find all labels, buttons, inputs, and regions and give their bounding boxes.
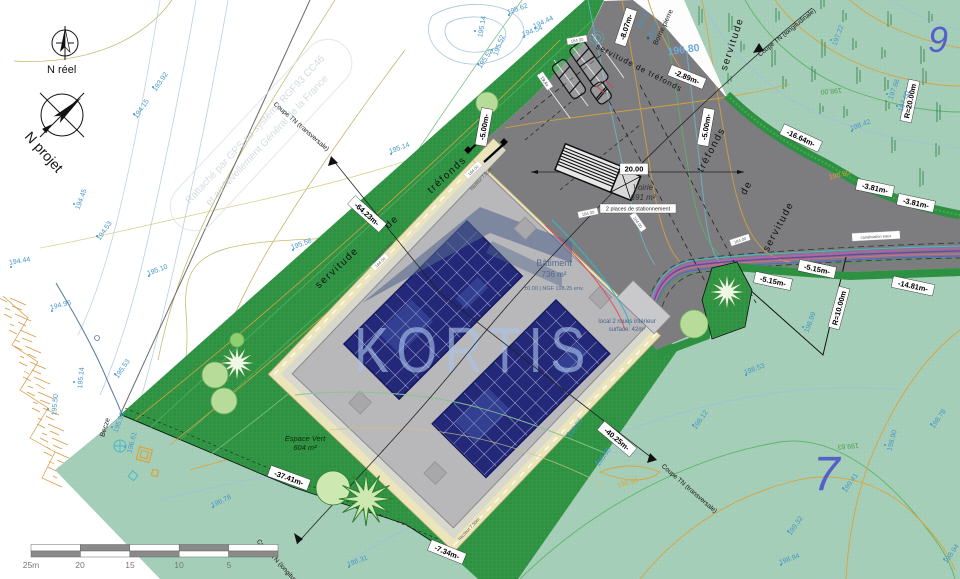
svg-text:5: 5 bbox=[227, 560, 232, 570]
svg-text:surface: 42m²: surface: 42m² bbox=[609, 327, 646, 333]
svg-text:15: 15 bbox=[125, 560, 135, 570]
svg-text:KORTIS: KORTIS bbox=[354, 315, 593, 386]
svg-text:25m: 25m bbox=[23, 560, 40, 570]
svg-text:691 m²: 691 m² bbox=[631, 193, 656, 202]
svg-text:20.00: 20.00 bbox=[625, 165, 644, 174]
svg-text:2 places de stationnement: 2 places de stationnement bbox=[606, 207, 671, 213]
svg-text:736 m²: 736 m² bbox=[542, 270, 567, 279]
svg-text:Bâtiment: Bâtiment bbox=[536, 258, 572, 268]
svg-text:10: 10 bbox=[174, 560, 184, 570]
svg-text:Espace Vert: Espace Vert bbox=[285, 434, 326, 443]
svg-text:±0.00 | NGF 198.25 env.: ±0.00 | NGF 198.25 env. bbox=[524, 286, 584, 292]
svg-text:Voirie: Voirie bbox=[633, 183, 654, 192]
svg-text:7: 7 bbox=[813, 448, 842, 501]
svg-text:9: 9 bbox=[928, 19, 948, 60]
svg-text:20: 20 bbox=[75, 560, 85, 570]
svg-text:604 m²: 604 m² bbox=[293, 443, 317, 452]
svg-text:N réel: N réel bbox=[47, 64, 76, 76]
svg-text:local 2 roues intérieur: local 2 roues intérieur bbox=[598, 319, 655, 325]
